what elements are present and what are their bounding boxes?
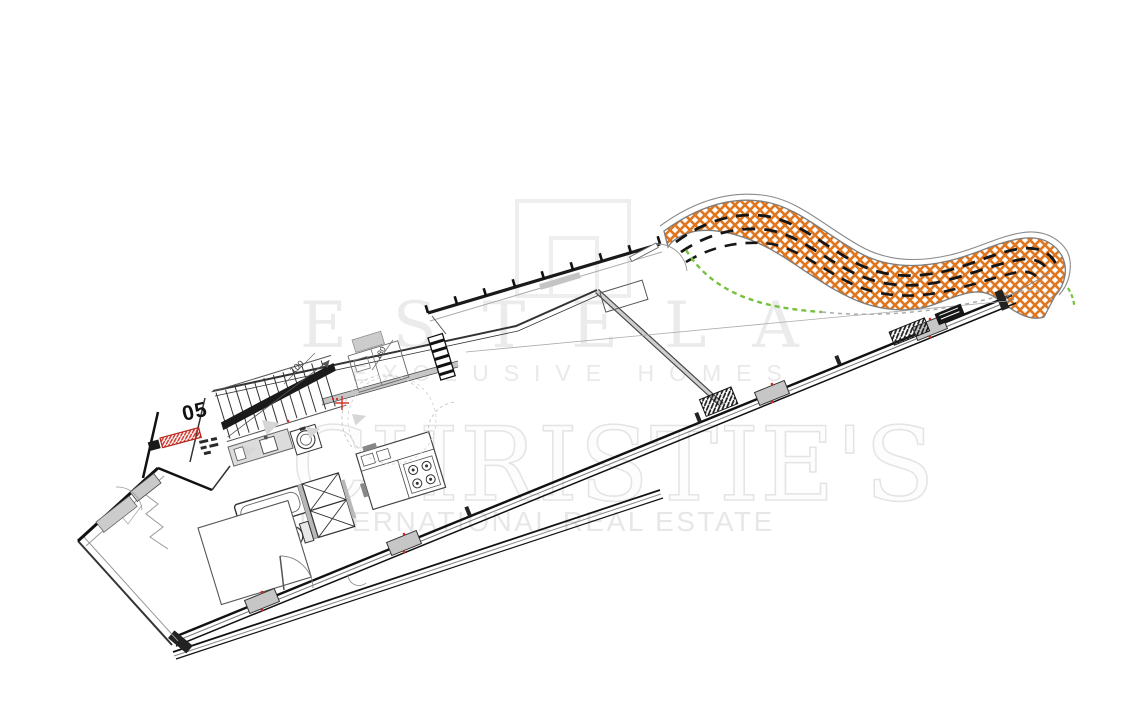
path-dashed-green-tail xyxy=(1068,288,1074,306)
kitchen-counter-with-sink xyxy=(228,429,293,466)
left-boundary-walls xyxy=(78,398,230,645)
unit-number-label: 05 xyxy=(180,398,210,426)
floor-plan-canvas: ESTELA EXCLUSIVE HOMES CHRISTIE'S INTERN… xyxy=(0,0,1131,720)
garden-gate-door xyxy=(630,243,687,271)
folding-door-zigzag xyxy=(142,492,168,549)
floor-plan-drawing: ESTELA EXCLUSIVE HOMES CHRISTIE'S INTERN… xyxy=(0,0,1131,720)
illegible-area-text xyxy=(199,437,220,456)
watermark-christies-tagline: INTERNATIONAL REAL ESTATE xyxy=(299,506,775,537)
